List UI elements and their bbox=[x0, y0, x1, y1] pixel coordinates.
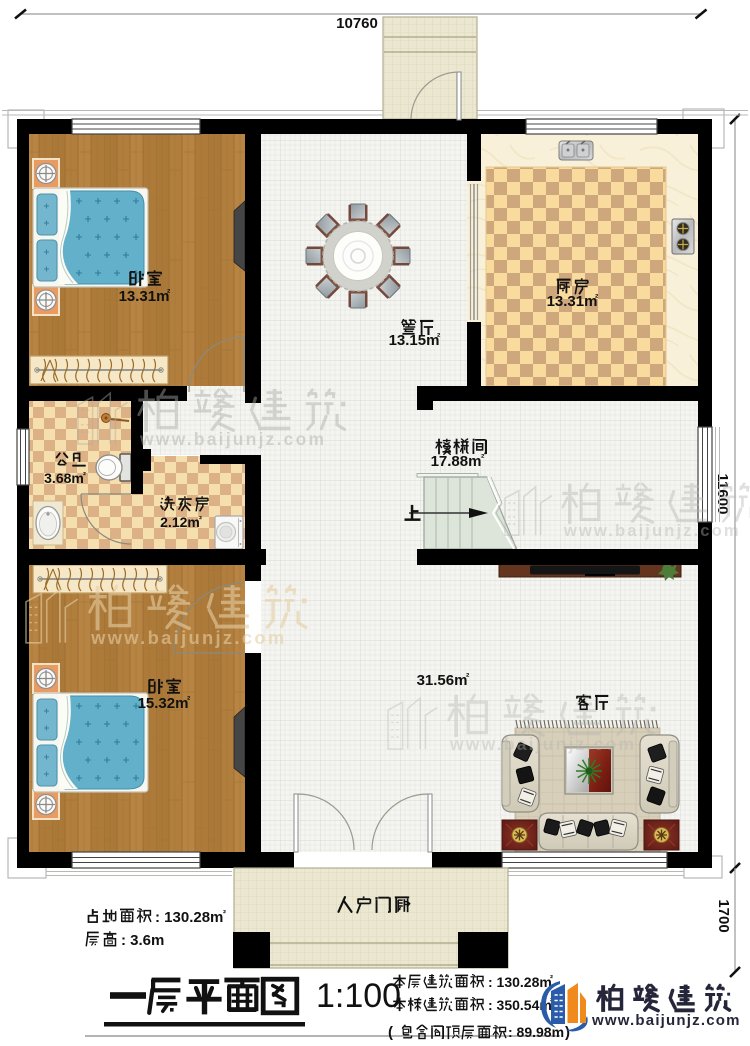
svg-text:13.15m: 13.15m bbox=[389, 332, 440, 349]
svg-text:²: ² bbox=[223, 908, 226, 918]
svg-text:17.88m: 17.88m bbox=[431, 453, 482, 470]
svg-text:²: ² bbox=[199, 514, 202, 524]
svg-text:1700: 1700 bbox=[715, 899, 732, 932]
svg-text:10760: 10760 bbox=[336, 15, 378, 32]
svg-text:2.12m: 2.12m bbox=[160, 514, 200, 530]
svg-text:www.baijunjz.com: www.baijunjz.com bbox=[563, 521, 741, 540]
svg-text:: 130.28m: : 130.28m bbox=[488, 974, 552, 990]
svg-text:: 130.28m: : 130.28m bbox=[155, 909, 223, 926]
svg-text:²: ² bbox=[550, 973, 553, 983]
svg-text:1:100: 1:100 bbox=[316, 977, 401, 1015]
svg-text:: 3.6m: : 3.6m bbox=[121, 932, 164, 949]
svg-text:3.68m: 3.68m bbox=[44, 470, 84, 486]
svg-text:www.baijunjz.com: www.baijunjz.com bbox=[449, 734, 636, 754]
svg-text:31.56m: 31.56m bbox=[417, 672, 468, 689]
svg-text:www.baijunjz.com: www.baijunjz.com bbox=[139, 429, 326, 449]
svg-text:15.32m: 15.32m bbox=[138, 695, 189, 712]
svg-text:13.31m: 13.31m bbox=[547, 293, 598, 310]
svg-text:www.baijunjz.com: www.baijunjz.com bbox=[591, 1012, 741, 1029]
svg-text:: 89.98m: : 89.98m bbox=[508, 1024, 564, 1040]
svg-text:www.baijunjz.com: www.baijunjz.com bbox=[90, 627, 286, 648]
svg-text:13.31m: 13.31m bbox=[119, 288, 170, 305]
svg-text:): ) bbox=[565, 1024, 570, 1041]
svg-text:(: ( bbox=[388, 1024, 393, 1041]
svg-text:²: ² bbox=[83, 470, 86, 480]
